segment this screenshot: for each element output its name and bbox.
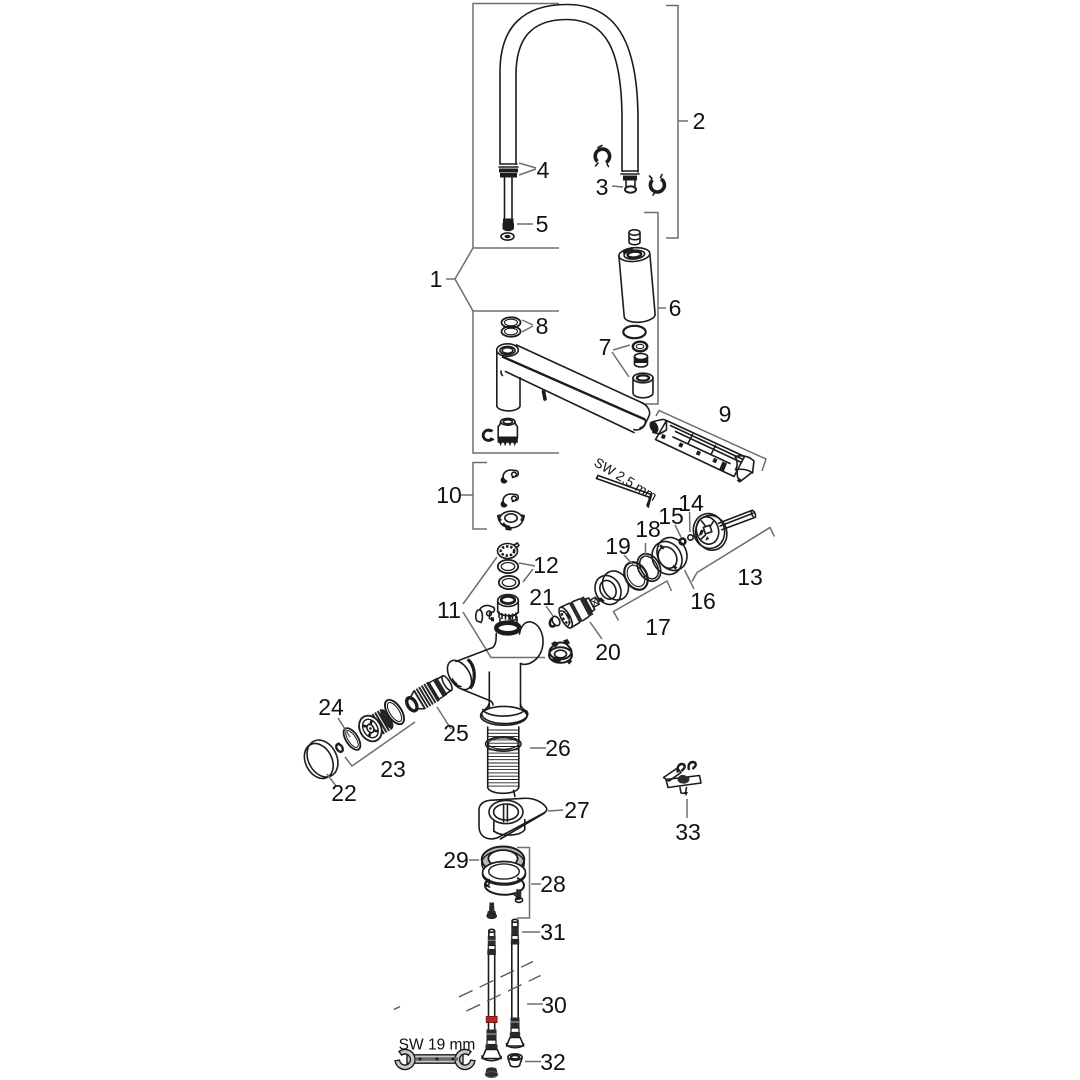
svg-text:11: 11 [437,597,461,623]
svg-text:19: 19 [605,533,631,559]
svg-text:33: 33 [675,819,701,845]
svg-text:25: 25 [443,720,469,746]
svg-text:1: 1 [430,266,443,292]
svg-text:23: 23 [380,756,406,782]
svg-text:12: 12 [533,552,559,578]
svg-text:8: 8 [536,313,549,339]
svg-text:SW 2,5 mm: SW 2,5 mm [591,455,659,504]
svg-text:32: 32 [540,1049,566,1075]
svg-text:24: 24 [318,694,344,720]
svg-text:10: 10 [436,482,462,508]
svg-text:13: 13 [737,564,763,590]
svg-text:30: 30 [541,992,567,1018]
svg-text:4: 4 [537,157,550,183]
svg-text:9: 9 [719,401,732,427]
svg-text:18: 18 [635,516,661,542]
svg-text:14: 14 [678,490,704,516]
svg-text:27: 27 [564,797,590,823]
svg-text:5: 5 [536,211,549,237]
svg-text:31: 31 [540,919,566,945]
svg-text:26: 26 [545,735,571,761]
svg-text:28: 28 [540,871,566,897]
svg-text:16: 16 [690,588,716,614]
svg-text:20: 20 [595,639,621,665]
svg-text:2: 2 [693,108,706,134]
svg-text:3: 3 [596,174,609,200]
svg-text:6: 6 [669,295,682,321]
svg-text:17: 17 [645,614,671,640]
svg-text:7: 7 [599,334,612,360]
svg-text:22: 22 [331,780,357,806]
svg-text:29: 29 [443,847,469,873]
svg-text:21: 21 [529,584,555,610]
